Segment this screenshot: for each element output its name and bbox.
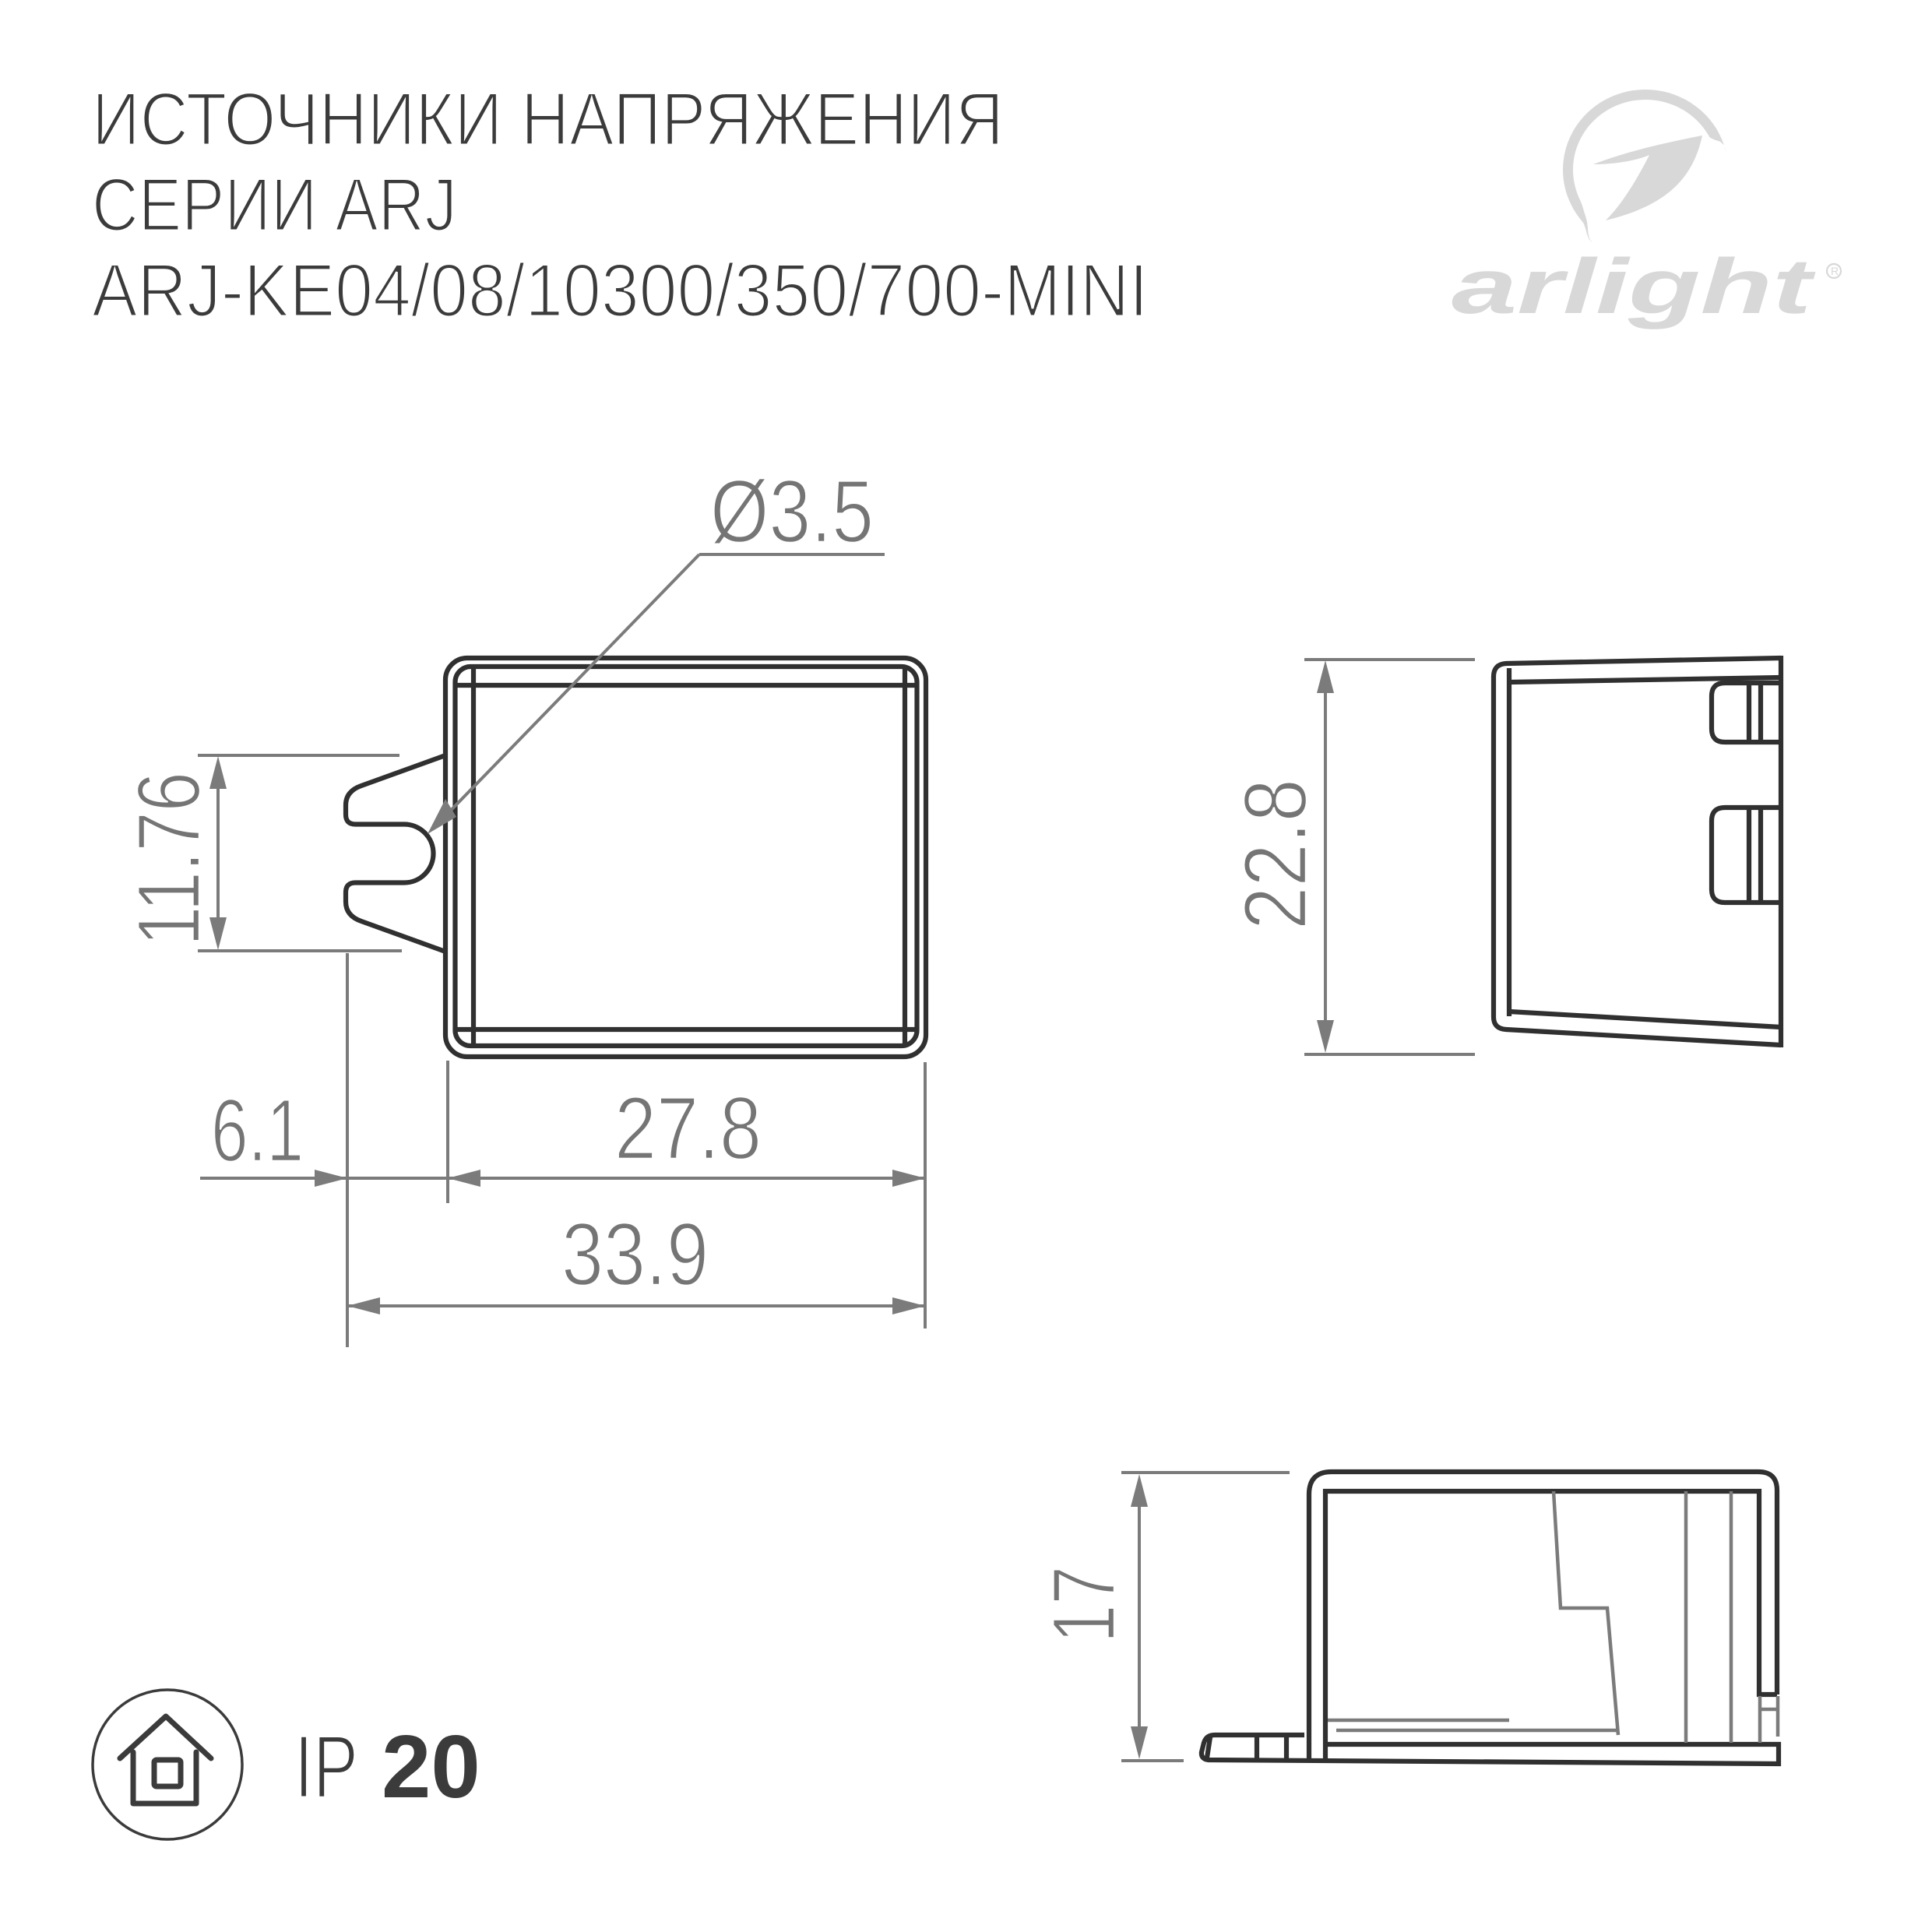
svg-text:17: 17	[1033, 1566, 1133, 1643]
svg-text:Ø3.5: Ø3.5	[710, 463, 874, 561]
svg-text:20: 20	[382, 1718, 480, 1817]
svg-text:6.1: 6.1	[211, 1082, 304, 1181]
svg-text:arlight: arlight	[1452, 243, 1817, 330]
svg-text:11.76: 11.76	[119, 772, 219, 946]
svg-text:ARJ-KE04/08/10300/350/700-MINI: ARJ-KE04/08/10300/350/700-MINI	[92, 248, 1148, 333]
svg-text:R: R	[1831, 265, 1839, 277]
svg-text:ИСТОЧНИКИ НАПРЯЖЕНИЯ: ИСТОЧНИКИ НАПРЯЖЕНИЯ	[92, 77, 1004, 161]
svg-text:СЕРИИ ARJ: СЕРИИ ARJ	[92, 163, 457, 248]
svg-text:22.8: 22.8	[1226, 779, 1325, 930]
svg-text:27.8: 27.8	[614, 1079, 762, 1178]
svg-text:IP: IP	[294, 1718, 358, 1817]
svg-text:33.9: 33.9	[561, 1205, 709, 1304]
